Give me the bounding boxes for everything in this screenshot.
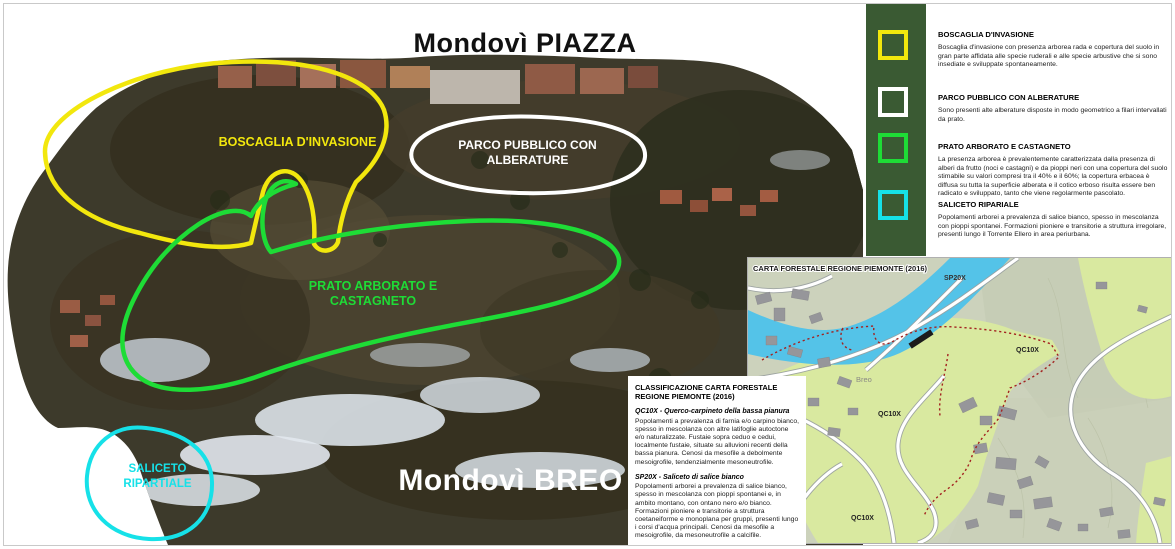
legend-swatch-parco	[878, 87, 908, 117]
zone-label-qc10x-3: QC10X	[851, 515, 874, 522]
legend-panel: BOSCAGLIA D'INVASIONE Boscaglia d'invasi…	[866, 4, 1171, 256]
legend-swatch-boscaglia	[878, 30, 908, 60]
region-label-saliceto: SALICETO RIPARTIALE	[105, 462, 210, 492]
legend-item-title: PRATO ARBORATO E CASTAGNETO	[938, 142, 1170, 151]
inset-map: CARTA FORESTALE REGIONE PIEMONTE (2016) …	[748, 258, 1172, 543]
legend-item-description: La presenza arborea è prevalentemente ca…	[938, 156, 1170, 199]
legend-item-title: BOSCAGLIA D'INVASIONE	[938, 30, 1170, 39]
classification-entry-description-qc10x: Popolamenti a prevalenza di farnia e/o c…	[635, 418, 799, 467]
legend-swatch-saliceto	[878, 190, 908, 220]
zone-label-qc10x-1: QC10X	[1016, 347, 1039, 354]
legend-swatch-prato	[878, 133, 908, 163]
inset-map-graphic: CARTA FORESTALE REGIONE PIEMONTE (2016) …	[748, 258, 1172, 543]
region-label-boscaglia: BOSCAGLIA D'INVASIONE	[200, 135, 395, 150]
town-label-breo: Breo	[856, 375, 872, 384]
zone-label-sp20x: SP20X	[944, 275, 966, 282]
legend-item-title: SALICETO RIPARIALE	[938, 200, 1170, 209]
region-label-parco: PARCO PUBBLICO CON ALBERATURE	[440, 138, 615, 168]
district-title-breo: Mondovì BREO	[378, 464, 643, 498]
inset-map-title: CARTA FORESTALE REGIONE PIEMONTE (2016)	[753, 264, 928, 273]
classification-box: CLASSIFICAZIONE CARTA FORESTALE REGIONE …	[628, 376, 806, 546]
legend-item-description: Sono presenti alte alberature disposte i…	[938, 107, 1170, 124]
district-title-piazza: Mondovì PIAZZA	[375, 28, 675, 59]
legend-item-description: Boscaglia d'invasione con presenza arbor…	[938, 44, 1170, 70]
classification-entry-heading-qc10x: QC10X - Querco-carpineto della bassa pia…	[635, 408, 799, 417]
zone-label-qc10x-2: QC10X	[878, 411, 901, 418]
classification-title: CLASSIFICAZIONE CARTA FORESTALE REGIONE …	[635, 383, 799, 401]
region-label-prato: PRATO ARBORATO E CASTAGNETO	[268, 279, 478, 309]
poster-canvas: Mondovì PIAZZA Mondovì BREO BOSCAGLIA D'…	[3, 3, 1172, 546]
legend-item-description: Popolamenti arborei a prevalenza di sali…	[938, 214, 1170, 240]
legend-item-title: PARCO PUBBLICO CON ALBERATURE	[938, 93, 1170, 102]
classification-entry-description-sp20x: Popolamenti arborei a prevalenza di sali…	[635, 483, 799, 540]
classification-entry-heading-sp20x: SP20X - Saliceto di salice bianco	[635, 474, 799, 483]
poster-frame: Mondovì PIAZZA Mondovì BREO BOSCAGLIA D'…	[3, 3, 1172, 546]
